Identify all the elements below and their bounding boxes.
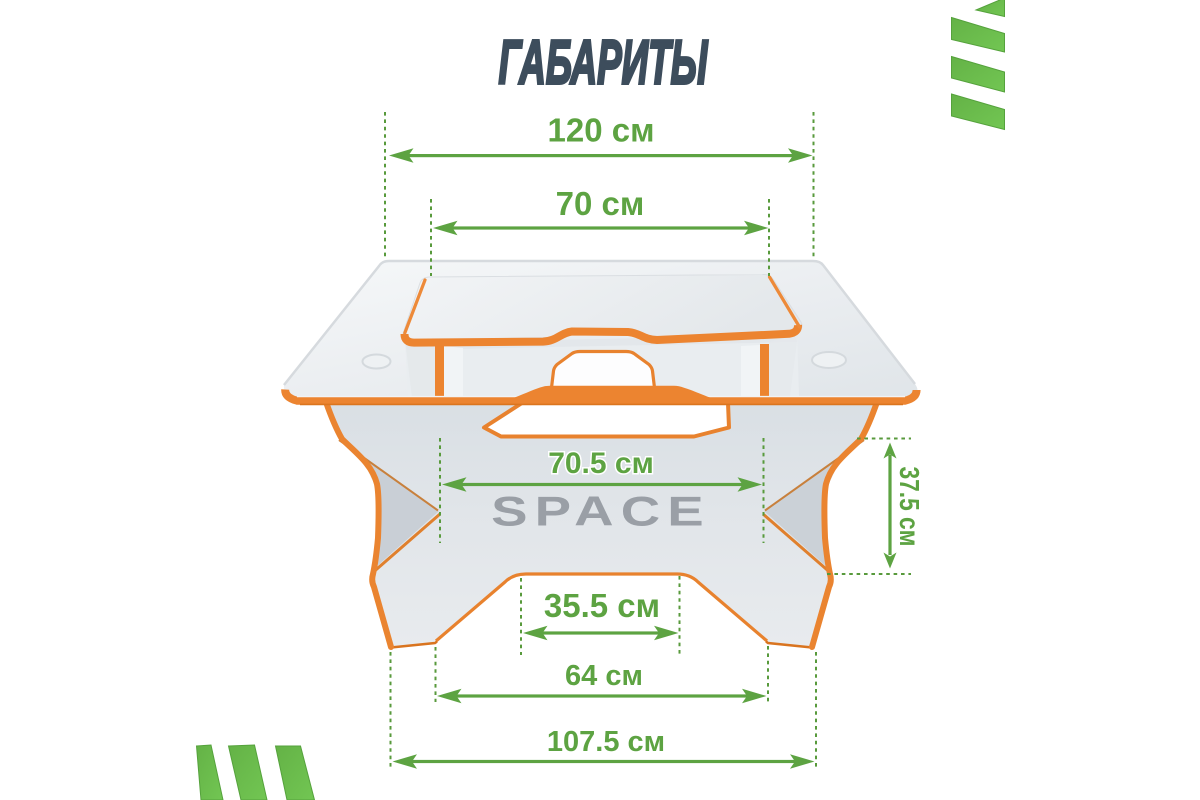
svg-text:107.5 см: 107.5 см bbox=[547, 726, 665, 758]
svg-text:70.5 см: 70.5 см bbox=[548, 447, 654, 480]
svg-text:37.5 см: 37.5 см bbox=[894, 467, 925, 547]
svg-text:35.5 см: 35.5 см bbox=[544, 587, 660, 624]
svg-text:64 см: 64 см bbox=[565, 660, 643, 692]
svg-text:ГАБАРИТЫ: ГАБАРИТЫ bbox=[499, 28, 709, 97]
svg-text:70 см: 70 см bbox=[556, 185, 645, 222]
svg-text:SPACE: SPACE bbox=[491, 488, 711, 535]
svg-text:120 см: 120 см bbox=[548, 112, 655, 149]
